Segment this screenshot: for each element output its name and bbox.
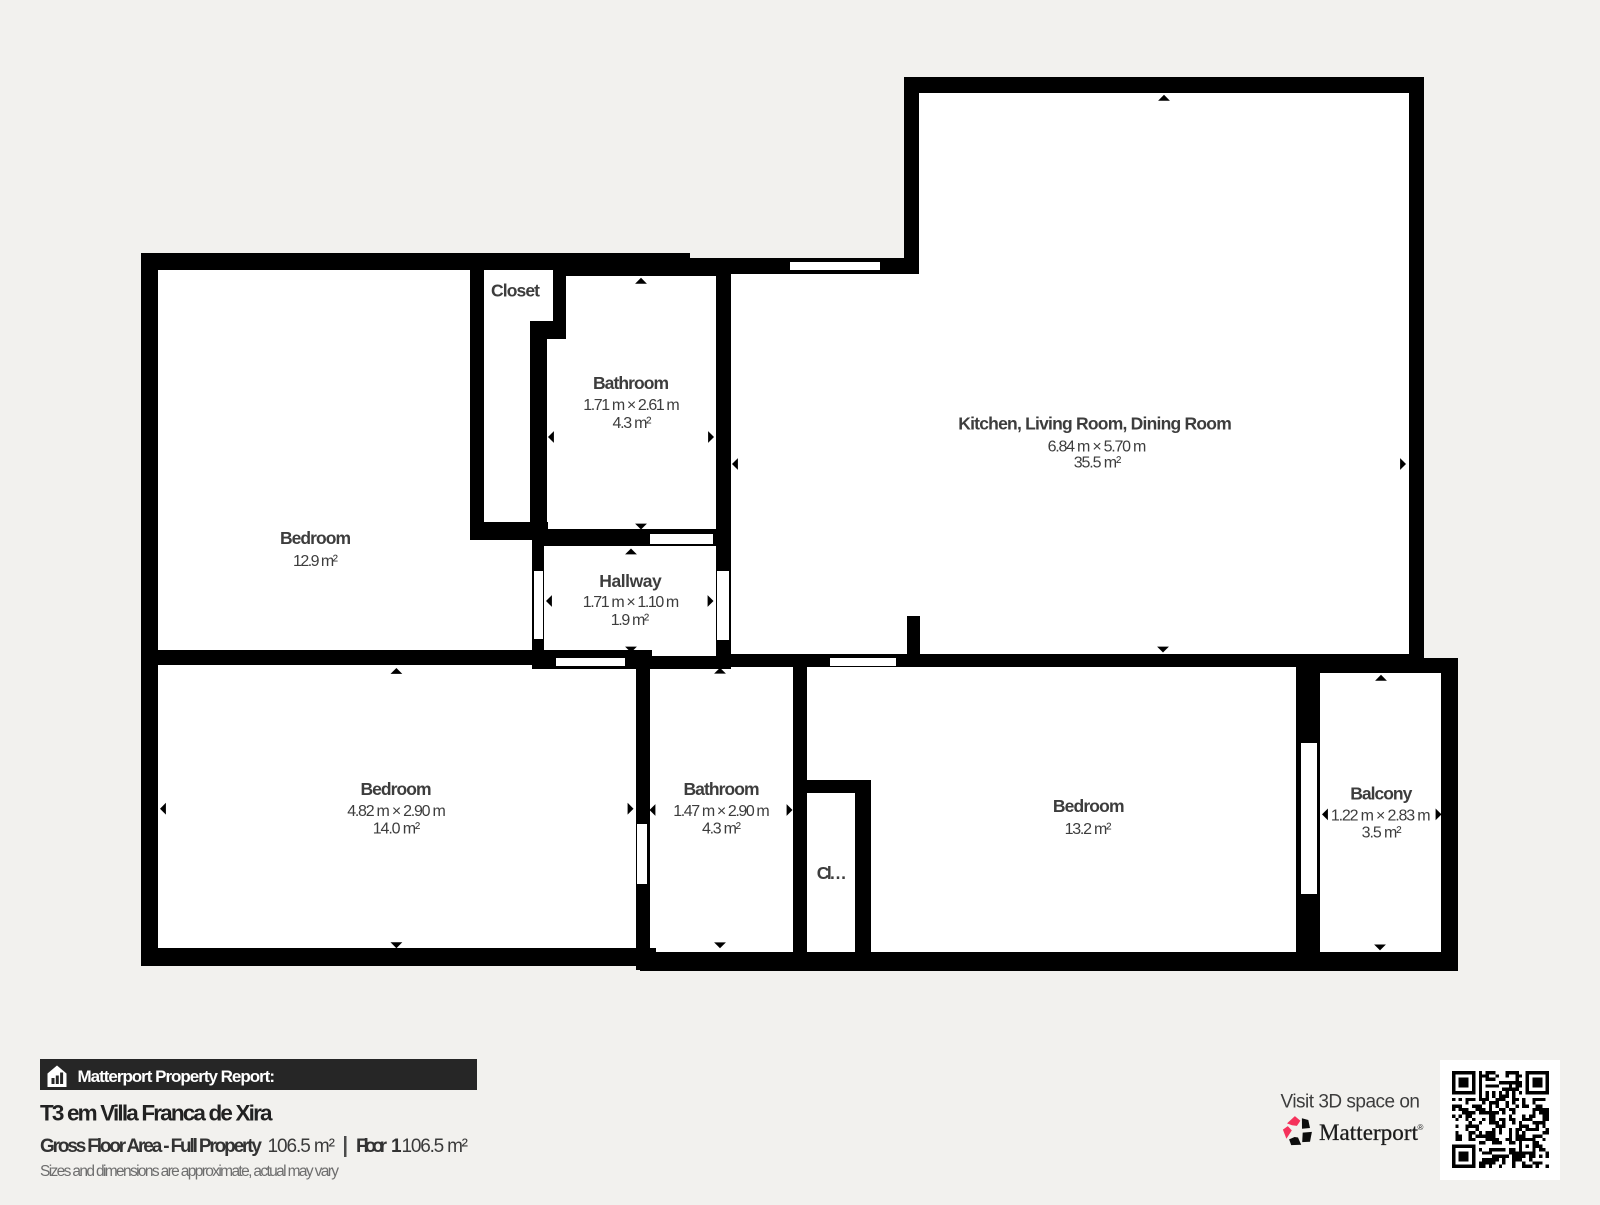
svg-text:1: 1 — [391, 1136, 402, 1157]
svg-text:Visit 3D space on: Visit 3D space on — [1281, 1092, 1421, 1113]
svg-text:14.0 m²: 14.0 m² — [373, 821, 421, 838]
svg-text:Matterport: Matterport — [1319, 1120, 1419, 1145]
svg-text:12.9 m²: 12.9 m² — [293, 553, 339, 570]
svg-text:Floor: Floor — [356, 1136, 388, 1157]
svg-text:Bathroom: Bathroom — [593, 373, 669, 393]
svg-text:35.5 m²: 35.5 m² — [1074, 455, 1122, 472]
svg-text:6.84 m × 5.70 m: 6.84 m × 5.70 m — [1048, 439, 1147, 456]
svg-text:1.47 m × 2.90 m: 1.47 m × 2.90 m — [673, 803, 770, 820]
svg-text:Sizes and dimensions are appro: Sizes and dimensions are approximate, ac… — [40, 1163, 339, 1180]
svg-text:T3 em Villa Franca de Xira: T3 em Villa Franca de Xira — [40, 1101, 273, 1126]
svg-text:3.5 m²: 3.5 m² — [1362, 825, 1403, 842]
svg-text:Bathroom: Bathroom — [684, 779, 760, 799]
svg-text:Kitchen, Living Room, Dining R: Kitchen, Living Room, Dining Room — [958, 414, 1232, 434]
svg-text:1.71 m × 1.10 m: 1.71 m × 1.10 m — [583, 594, 680, 611]
svg-text:13.2 m²: 13.2 m² — [1065, 821, 1112, 838]
svg-text:106.5 m²: 106.5 m² — [268, 1136, 336, 1157]
svg-text:1.22 m × 2.83 m: 1.22 m × 2.83 m — [1331, 807, 1431, 824]
svg-text:Bedroom: Bedroom — [361, 779, 432, 799]
svg-text:Balcony: Balcony — [1350, 784, 1412, 804]
svg-text:4.82 m × 2.90 m: 4.82 m × 2.90 m — [347, 803, 446, 820]
svg-text:Cl…: Cl… — [817, 863, 847, 883]
svg-text:4.3 m²: 4.3 m² — [613, 415, 653, 432]
svg-text:Bedroom: Bedroom — [280, 528, 351, 548]
svg-text:Hallway: Hallway — [599, 571, 662, 591]
svg-text:Gross Floor Area - Full Proper: Gross Floor Area - Full Property — [40, 1136, 262, 1157]
svg-text:106.5 m²: 106.5 m² — [402, 1136, 469, 1157]
svg-text:Bedroom: Bedroom — [1053, 796, 1125, 816]
svg-text:1.71 m × 2.61 m: 1.71 m × 2.61 m — [583, 397, 680, 414]
svg-text:®: ® — [1418, 1123, 1424, 1132]
svg-text:Matterport Property Report:: Matterport Property Report: — [78, 1067, 276, 1086]
svg-text:Closet: Closet — [491, 281, 540, 301]
svg-text:4.3 m²: 4.3 m² — [702, 821, 742, 838]
svg-text:1.9 m²: 1.9 m² — [611, 612, 650, 629]
